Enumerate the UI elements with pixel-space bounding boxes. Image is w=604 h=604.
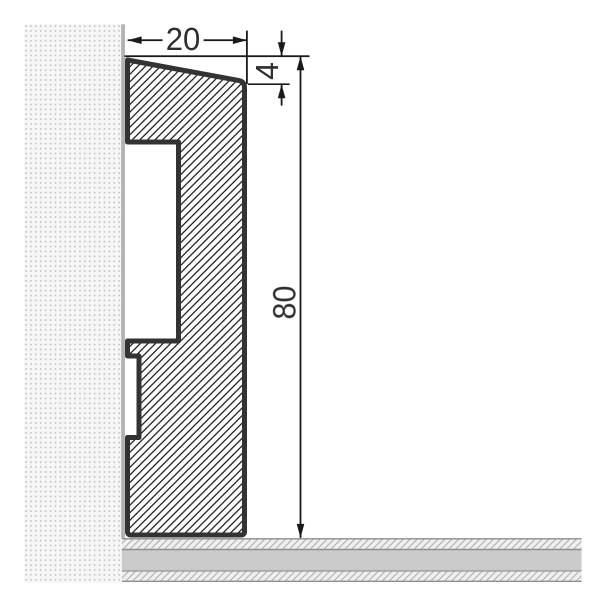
svg-text:80: 80: [266, 286, 302, 320]
svg-text:4: 4: [249, 62, 285, 80]
svg-text:20: 20: [166, 21, 201, 57]
